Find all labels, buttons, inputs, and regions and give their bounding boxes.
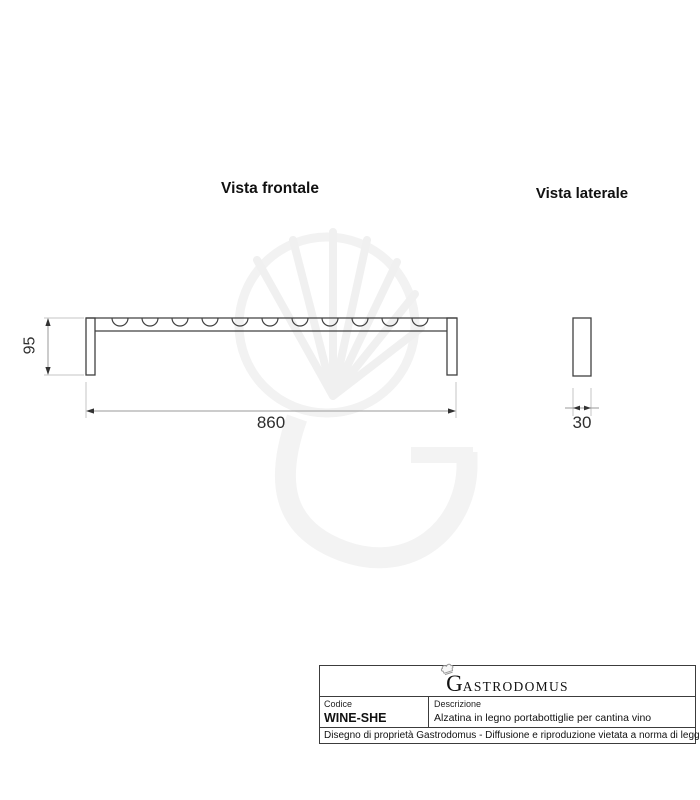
front-bottle-notches: [112, 318, 428, 326]
depth-arrow-left: [573, 406, 580, 411]
front-right-leg: [447, 318, 457, 375]
gastrodomus-logo: GASTRODOMUS: [446, 674, 569, 694]
side-view-drawing: [550, 300, 630, 440]
width-arrow-right: [448, 408, 456, 413]
title-block: GASTRODOMUS Codice WINE-SHE Descrizione …: [319, 665, 696, 744]
depth-extension-lines: [573, 388, 591, 416]
description-label: Descrizione: [434, 699, 690, 710]
height-extension-lines: [44, 318, 84, 375]
title-block-logo-row: GASTRODOMUS: [320, 666, 695, 697]
side-view-title: Vista laterale: [492, 185, 672, 202]
height-arrow-up: [45, 318, 50, 326]
front-view-drawing: [20, 300, 470, 440]
code-value: WINE-SHE: [324, 711, 424, 725]
width-extension-lines: [86, 382, 456, 418]
width-arrow-left: [86, 408, 94, 413]
description-cell: Descrizione Alzatina in legno portabotti…: [429, 697, 695, 727]
logo-text: ASTRODOMUS: [463, 680, 569, 694]
title-block-legal-row: Disegno di proprietà Gastrodomus - Diffu…: [320, 728, 695, 743]
legal-notice: Disegno di proprietà Gastrodomus - Diffu…: [324, 730, 700, 741]
chef-hat-icon: [439, 663, 457, 679]
technical-drawing-page: Vista frontale Vista laterale 95 860 30: [0, 0, 700, 800]
code-cell: Codice WINE-SHE: [320, 697, 429, 727]
side-profile-rect: [573, 318, 591, 376]
height-arrow-down: [45, 367, 50, 375]
title-block-fields-row: Codice WINE-SHE Descrizione Alzatina in …: [320, 697, 695, 728]
description-value: Alzatina in legno portabottiglie per can…: [434, 712, 690, 724]
front-view-title: Vista frontale: [170, 180, 370, 198]
front-left-leg: [86, 318, 95, 375]
code-label: Codice: [324, 699, 424, 710]
depth-arrow-right: [584, 406, 591, 411]
